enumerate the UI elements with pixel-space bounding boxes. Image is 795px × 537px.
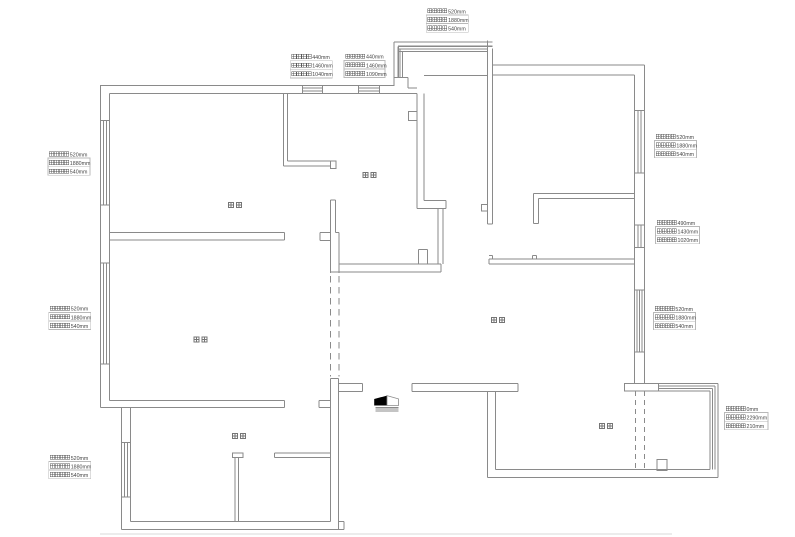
svg-text:1460mm: 1460mm xyxy=(366,63,387,69)
svg-text:540mm: 540mm xyxy=(71,473,89,479)
svg-text:210mm: 210mm xyxy=(747,424,765,430)
svg-text:2290mm: 2290mm xyxy=(747,416,768,422)
svg-text:1880mm: 1880mm xyxy=(676,144,697,150)
svg-text:1880mm: 1880mm xyxy=(71,315,92,321)
svg-text:1020mm: 1020mm xyxy=(678,238,699,244)
svg-text:1880mm: 1880mm xyxy=(675,316,696,322)
svg-text:440mm: 440mm xyxy=(312,55,330,61)
svg-text:1040mm: 1040mm xyxy=(312,72,333,78)
svg-text:1460mm: 1460mm xyxy=(312,64,333,70)
svg-text:540mm: 540mm xyxy=(70,170,88,176)
svg-text:1880mm: 1880mm xyxy=(448,18,469,24)
svg-text:540mm: 540mm xyxy=(675,324,693,330)
svg-text:1430mm: 1430mm xyxy=(678,230,699,236)
svg-text:540mm: 540mm xyxy=(676,152,694,158)
svg-text:540mm: 540mm xyxy=(71,324,89,330)
svg-text:440mm: 440mm xyxy=(366,55,384,61)
svg-text:520mm: 520mm xyxy=(675,307,693,313)
svg-text:1880mm: 1880mm xyxy=(71,464,92,470)
svg-text:0mm: 0mm xyxy=(747,407,759,413)
svg-text:520mm: 520mm xyxy=(71,456,89,462)
svg-text:1090mm: 1090mm xyxy=(366,72,387,78)
svg-text:520mm: 520mm xyxy=(70,152,88,158)
svg-text:520mm: 520mm xyxy=(676,135,694,141)
svg-text:490mm: 490mm xyxy=(678,221,696,227)
svg-text:520mm: 520mm xyxy=(448,9,466,15)
svg-text:520mm: 520mm xyxy=(71,307,89,313)
svg-text:540mm: 540mm xyxy=(448,27,466,33)
svg-text:1880mm: 1880mm xyxy=(70,161,91,167)
